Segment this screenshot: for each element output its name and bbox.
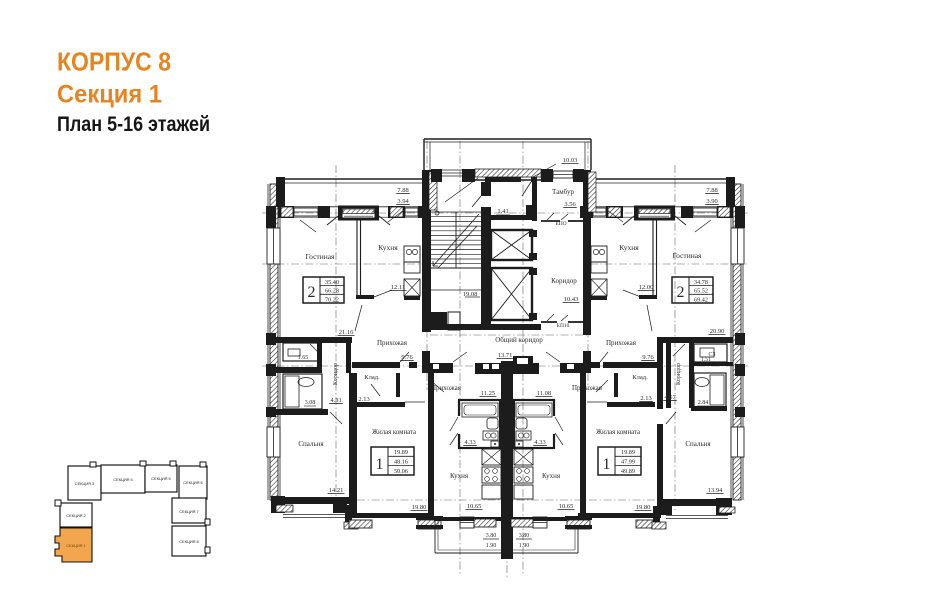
svg-text:10.65: 10.65	[467, 503, 482, 510]
svg-text:9.76: 9.76	[401, 354, 413, 361]
svg-text:66.28: 66.28	[325, 288, 339, 295]
svg-text:Коридор: Коридор	[676, 363, 682, 385]
svg-text:3.94: 3.94	[397, 198, 409, 205]
svg-text:11.08: 11.08	[537, 390, 551, 397]
svg-text:10.03: 10.03	[563, 157, 578, 164]
svg-text:11.25: 11.25	[481, 390, 495, 397]
svg-text:49.89: 49.89	[621, 468, 635, 475]
svg-text:СЕКЦИЯ 8: СЕКЦИЯ 8	[179, 539, 198, 544]
svg-text:2: 2	[677, 284, 685, 301]
svg-text:65.52: 65.52	[694, 288, 708, 295]
svg-text:Кухня: Кухня	[450, 472, 469, 480]
svg-text:1.41: 1.41	[497, 208, 508, 215]
svg-text:7.88: 7.88	[706, 187, 717, 194]
svg-text:Коридор: Коридор	[551, 277, 577, 285]
svg-text:3.56: 3.56	[564, 201, 576, 208]
svg-text:4.33: 4.33	[534, 439, 545, 446]
svg-text:Тамбур: Тамбур	[552, 188, 574, 196]
svg-text:Кухня: Кухня	[542, 472, 561, 480]
svg-text:12.00: 12.00	[639, 284, 654, 291]
svg-text:13.94: 13.94	[708, 487, 723, 494]
svg-text:50.06: 50.06	[394, 468, 408, 475]
svg-text:СЕКЦИЯ 2: СЕКЦИЯ 2	[66, 513, 85, 518]
svg-text:1.65: 1.65	[298, 355, 309, 361]
svg-text:Гостиная: Гостиная	[305, 252, 335, 261]
svg-text:Прихожая: Прихожая	[377, 339, 408, 347]
svg-text:Общий коридор: Общий коридор	[495, 336, 543, 344]
svg-text:48.16: 48.16	[394, 459, 408, 466]
svg-text:19.80: 19.80	[636, 504, 651, 511]
svg-text:69.42: 69.42	[694, 296, 708, 303]
svg-text:7.88: 7.88	[397, 187, 408, 194]
svg-text:34.78: 34.78	[694, 279, 708, 286]
svg-text:2.13: 2.13	[358, 396, 369, 403]
svg-text:Клад.: Клад.	[632, 374, 648, 381]
svg-text:СЕКЦИЯ 5: СЕКЦИЯ 5	[151, 476, 170, 481]
svg-text:19.80: 19.80	[412, 504, 427, 511]
svg-text:Жилая комната: Жилая комната	[596, 429, 640, 436]
svg-text:СЕКЦИЯ 1: СЕКЦИЯ 1	[66, 543, 85, 548]
svg-text:СЕКЦИЯ 6: СЕКЦИЯ 6	[183, 480, 202, 485]
svg-text:1: 1	[376, 456, 384, 473]
svg-text:СЕКЦИЯ 4: СЕКЦИЯ 4	[113, 477, 133, 482]
svg-text:Прихожая: Прихожая	[572, 384, 603, 392]
svg-text:4.57: 4.57	[664, 394, 676, 401]
svg-text:20.90: 20.90	[710, 328, 725, 335]
svg-text:Прихожая: Прихожая	[606, 339, 637, 347]
svg-text:1.90: 1.90	[519, 543, 530, 549]
svg-text:14.21: 14.21	[329, 487, 344, 494]
svg-text:4.33: 4.33	[464, 439, 475, 446]
svg-text:Секция 1: Секция 1	[57, 81, 162, 109]
svg-text:13.71: 13.71	[498, 352, 513, 359]
svg-text:2: 2	[308, 284, 316, 301]
svg-text:19.89: 19.89	[394, 449, 408, 456]
svg-text:Кухня: Кухня	[619, 243, 639, 252]
svg-text:2.13: 2.13	[640, 395, 651, 402]
svg-text:Клад.: Клад.	[364, 374, 380, 381]
svg-text:4.31: 4.31	[330, 397, 341, 404]
svg-text:10.43: 10.43	[564, 296, 579, 303]
svg-text:12.11: 12.11	[391, 284, 405, 291]
svg-text:3.90: 3.90	[706, 198, 717, 205]
svg-text:9.76: 9.76	[642, 354, 654, 361]
svg-text:КОРПУС 8: КОРПУС 8	[57, 49, 171, 77]
svg-text:Кухня: Кухня	[378, 243, 398, 252]
svg-text:3.80: 3.80	[519, 533, 530, 539]
svg-text:1.90: 1.90	[486, 543, 497, 549]
svg-text:Жилая комната: Жилая комната	[372, 429, 416, 436]
svg-text:СЕКЦИЯ 7: СЕКЦИЯ 7	[179, 509, 198, 514]
svg-text:Спальня: Спальня	[685, 440, 711, 448]
svg-text:ЕПО: ЕПО	[555, 221, 566, 227]
svg-text:10.65: 10.65	[559, 503, 574, 510]
svg-text:Спальня: Спальня	[298, 440, 324, 448]
svg-text:47.99: 47.99	[621, 459, 635, 466]
svg-text:70.22: 70.22	[325, 296, 339, 303]
svg-text:Гостиная: Гостиная	[672, 251, 702, 260]
svg-text:3.80: 3.80	[486, 533, 497, 539]
svg-text:35.40: 35.40	[325, 279, 339, 286]
svg-text:План 5-16 этажей: План 5-16 этажей	[57, 113, 210, 136]
svg-text:3.08: 3.08	[305, 400, 316, 406]
svg-text:19.89: 19.89	[621, 449, 635, 456]
svg-text:1: 1	[603, 456, 611, 473]
svg-text:СЕКЦИЯ 3: СЕКЦИЯ 3	[75, 481, 94, 486]
svg-text:21.16: 21.16	[339, 329, 354, 336]
svg-text:Коридор: Коридор	[333, 363, 339, 385]
svg-text:ЕП10: ЕП10	[557, 323, 570, 329]
svg-text:2.84: 2.84	[698, 400, 709, 406]
